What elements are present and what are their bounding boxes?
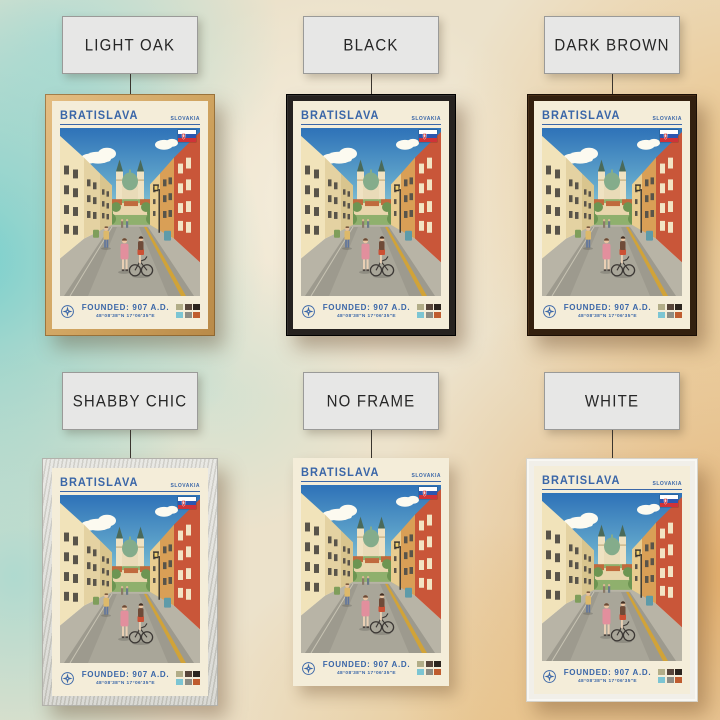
color-palette-swatches (176, 304, 200, 318)
poster-artwork (301, 128, 441, 296)
coordinates-text: 48°08'38"N 17°06'35"E (560, 314, 655, 319)
founded-text: FOUNDED: 907 A.D. (319, 303, 414, 312)
founded-text: FOUNDED: 907 A.D. (78, 670, 173, 679)
poster-artwork (542, 128, 682, 296)
palette-swatch (434, 669, 441, 675)
teal-bin (646, 231, 653, 241)
compass-icon (542, 669, 557, 684)
bratislava-street-illustration (301, 485, 441, 653)
palette-swatch (417, 661, 424, 667)
poster-title: BRATISLAVA (60, 109, 138, 122)
palette-swatch (176, 312, 183, 318)
compass-icon (301, 661, 316, 676)
poster-header: BRATISLAVA SLOVAKIA (301, 467, 441, 482)
color-palette-swatches (658, 304, 682, 318)
palette-swatch (193, 312, 200, 318)
poster-frame: BRATISLAVA SLOVAKIA (527, 94, 697, 336)
poster-paper: BRATISLAVA SLOVAKIA (534, 101, 690, 329)
poster-artwork (301, 485, 441, 653)
palette-swatch (658, 312, 665, 318)
frame-option-dark-brown: DARK BROWN BRATISLAVA SLOVAKIA (522, 16, 702, 336)
frame-option-label-box: SHABBY CHIC (62, 372, 198, 430)
founded-text: FOUNDED: 907 A.D. (78, 303, 173, 312)
palette-swatch (434, 312, 441, 318)
poster-paper: BRATISLAVA SLOVAKIA (293, 101, 449, 329)
compass-icon (542, 304, 557, 319)
poster-footer: FOUNDED: 907 A.D. 48°08'38"N 17°06'35"E (542, 664, 682, 688)
frame-option-label: LIGHT OAK (85, 35, 176, 54)
frame-option-label: BLACK (343, 35, 398, 54)
poster-artwork (60, 495, 200, 663)
palette-swatch (417, 312, 424, 318)
poster-header: BRATISLAVA SLOVAKIA (542, 110, 682, 125)
compass-icon (301, 304, 316, 319)
palette-swatch (667, 312, 674, 318)
frame-option-black: BLACK BRATISLAVA SLOVAKIA (281, 16, 461, 336)
frame-option-label-box: BLACK (303, 16, 439, 74)
teal-bin (164, 231, 171, 241)
palette-swatch (426, 661, 433, 667)
poster-footer: FOUNDED: 907 A.D. 48°08'38"N 17°06'35"E (301, 299, 441, 323)
frame-option-white: WHITE BRATISLAVA SLOVAKIA (522, 372, 702, 702)
frame-option-label: SHABBY CHIC (73, 391, 188, 410)
poster-artwork (542, 493, 682, 661)
palette-swatch (667, 304, 674, 310)
palette-swatch (667, 677, 674, 683)
coordinates-text: 48°08'38"N 17°06'35"E (560, 679, 655, 684)
green-bin (334, 587, 340, 595)
poster-title: BRATISLAVA (301, 109, 379, 122)
frame-option-no-frame: NO FRAME BRATISLAVA SLOVAKIA (281, 372, 461, 686)
palette-swatch (434, 661, 441, 667)
color-palette-swatches (176, 671, 200, 685)
palette-swatch (176, 304, 183, 310)
color-palette-swatches (417, 304, 441, 318)
poster-frame: BRATISLAVA SLOVAKIA (293, 458, 449, 686)
green-bin (334, 230, 340, 238)
hanging-wire (612, 430, 613, 458)
poster-country-label: SLOVAKIA (412, 116, 441, 122)
palette-swatch (185, 671, 192, 677)
palette-swatch (193, 671, 200, 677)
palette-swatch (434, 304, 441, 310)
palette-swatch (185, 312, 192, 318)
poster-frame: BRATISLAVA SLOVAKIA (286, 94, 456, 336)
palette-swatch (176, 671, 183, 677)
poster-frame: BRATISLAVA SLOVAKIA (45, 94, 215, 336)
bratislava-street-illustration (60, 128, 200, 296)
palette-swatch (193, 304, 200, 310)
poster-header: BRATISLAVA SLOVAKIA (301, 110, 441, 125)
slovakia-flag (178, 497, 196, 509)
poster-title: BRATISLAVA (542, 109, 620, 122)
palette-swatch (667, 669, 674, 675)
palette-swatch (675, 312, 682, 318)
green-bin (93, 230, 99, 238)
coordinates-text: 48°08'38"N 17°06'35"E (319, 314, 414, 319)
poster-country-label: SLOVAKIA (653, 116, 682, 122)
palette-swatch (658, 677, 665, 683)
frame-option-label: DARK BROWN (554, 35, 669, 54)
frame-option-label-box: DARK BROWN (544, 16, 680, 74)
poster-paper: BRATISLAVA SLOVAKIA (534, 466, 690, 694)
poster-header: BRATISLAVA SLOVAKIA (60, 477, 200, 492)
bratislava-street-illustration (60, 495, 200, 663)
palette-swatch (417, 304, 424, 310)
slovakia-flag (419, 130, 437, 142)
palette-swatch (185, 304, 192, 310)
slovakia-flag (660, 130, 678, 142)
palette-swatch (675, 669, 682, 675)
palette-swatch (417, 669, 424, 675)
teal-bin (405, 231, 412, 241)
slovakia-flag (419, 487, 437, 499)
poster-country-label: SLOVAKIA (171, 116, 200, 122)
frame-option-label: NO FRAME (327, 391, 416, 410)
frame-option-shabby-chic: SHABBY CHIC BRATISLAVA SLOVAKIA (40, 372, 220, 706)
coordinates-text: 48°08'38"N 17°06'35"E (78, 681, 173, 686)
coordinates-text: 48°08'38"N 17°06'35"E (78, 314, 173, 319)
coordinates-text: 48°08'38"N 17°06'35"E (319, 671, 414, 676)
founded-text: FOUNDED: 907 A.D. (560, 668, 655, 677)
poster-artwork (60, 128, 200, 296)
frame-option-label: WHITE (585, 391, 639, 410)
poster-footer: FOUNDED: 907 A.D. 48°08'38"N 17°06'35"E (60, 299, 200, 323)
palette-swatch (675, 304, 682, 310)
poster-title: BRATISLAVA (60, 476, 138, 489)
palette-swatch (426, 312, 433, 318)
frame-option-label-box: WHITE (544, 372, 680, 430)
founded-text: FOUNDED: 907 A.D. (319, 660, 414, 669)
frame-option-light-oak: LIGHT OAK BRATISLAVA SLOVAKIA (40, 16, 220, 336)
poster-header: BRATISLAVA SLOVAKIA (60, 110, 200, 125)
green-bin (575, 595, 581, 603)
compass-icon (60, 671, 75, 686)
hanging-wire (130, 430, 131, 458)
palette-swatch (658, 304, 665, 310)
palette-swatch (426, 304, 433, 310)
teal-bin (646, 596, 653, 606)
color-palette-swatches (658, 669, 682, 683)
bratislava-street-illustration (542, 128, 682, 296)
poster-frame: BRATISLAVA SLOVAKIA (526, 458, 698, 702)
poster-title: BRATISLAVA (301, 466, 379, 479)
frame-option-label-box: LIGHT OAK (62, 16, 198, 74)
poster-country-label: SLOVAKIA (653, 481, 682, 487)
poster-frame: BRATISLAVA SLOVAKIA (42, 458, 218, 706)
poster-footer: FOUNDED: 907 A.D. 48°08'38"N 17°06'35"E (60, 666, 200, 690)
palette-swatch (185, 679, 192, 685)
palette-swatch (176, 679, 183, 685)
poster-paper: BRATISLAVA SLOVAKIA (52, 468, 208, 696)
teal-bin (164, 598, 171, 608)
green-bin (93, 597, 99, 605)
poster-country-label: SLOVAKIA (412, 473, 441, 479)
poster-title: BRATISLAVA (542, 474, 620, 487)
palette-swatch (426, 669, 433, 675)
slovakia-flag (660, 495, 678, 507)
green-bin (575, 230, 581, 238)
palette-swatch (193, 679, 200, 685)
palette-swatch (658, 669, 665, 675)
palette-swatch (675, 677, 682, 683)
poster-paper: BRATISLAVA SLOVAKIA (293, 458, 449, 686)
hanging-wire (371, 74, 372, 94)
teal-bin (405, 588, 412, 598)
frame-option-label-box: NO FRAME (303, 372, 439, 430)
founded-text: FOUNDED: 907 A.D. (560, 303, 655, 312)
color-palette-swatches (417, 661, 441, 675)
hanging-wire (371, 430, 372, 458)
poster-paper: BRATISLAVA SLOVAKIA (52, 101, 208, 329)
poster-country-label: SLOVAKIA (171, 483, 200, 489)
compass-icon (60, 304, 75, 319)
hanging-wire (612, 74, 613, 94)
hanging-wire (130, 74, 131, 94)
wall-background: LIGHT OAK BRATISLAVA SLOVAKIA (0, 0, 720, 720)
bratislava-street-illustration (542, 493, 682, 661)
slovakia-flag (178, 130, 196, 142)
poster-header: BRATISLAVA SLOVAKIA (542, 475, 682, 490)
bratislava-street-illustration (301, 128, 441, 296)
poster-footer: FOUNDED: 907 A.D. 48°08'38"N 17°06'35"E (542, 299, 682, 323)
poster-footer: FOUNDED: 907 A.D. 48°08'38"N 17°06'35"E (301, 656, 441, 680)
